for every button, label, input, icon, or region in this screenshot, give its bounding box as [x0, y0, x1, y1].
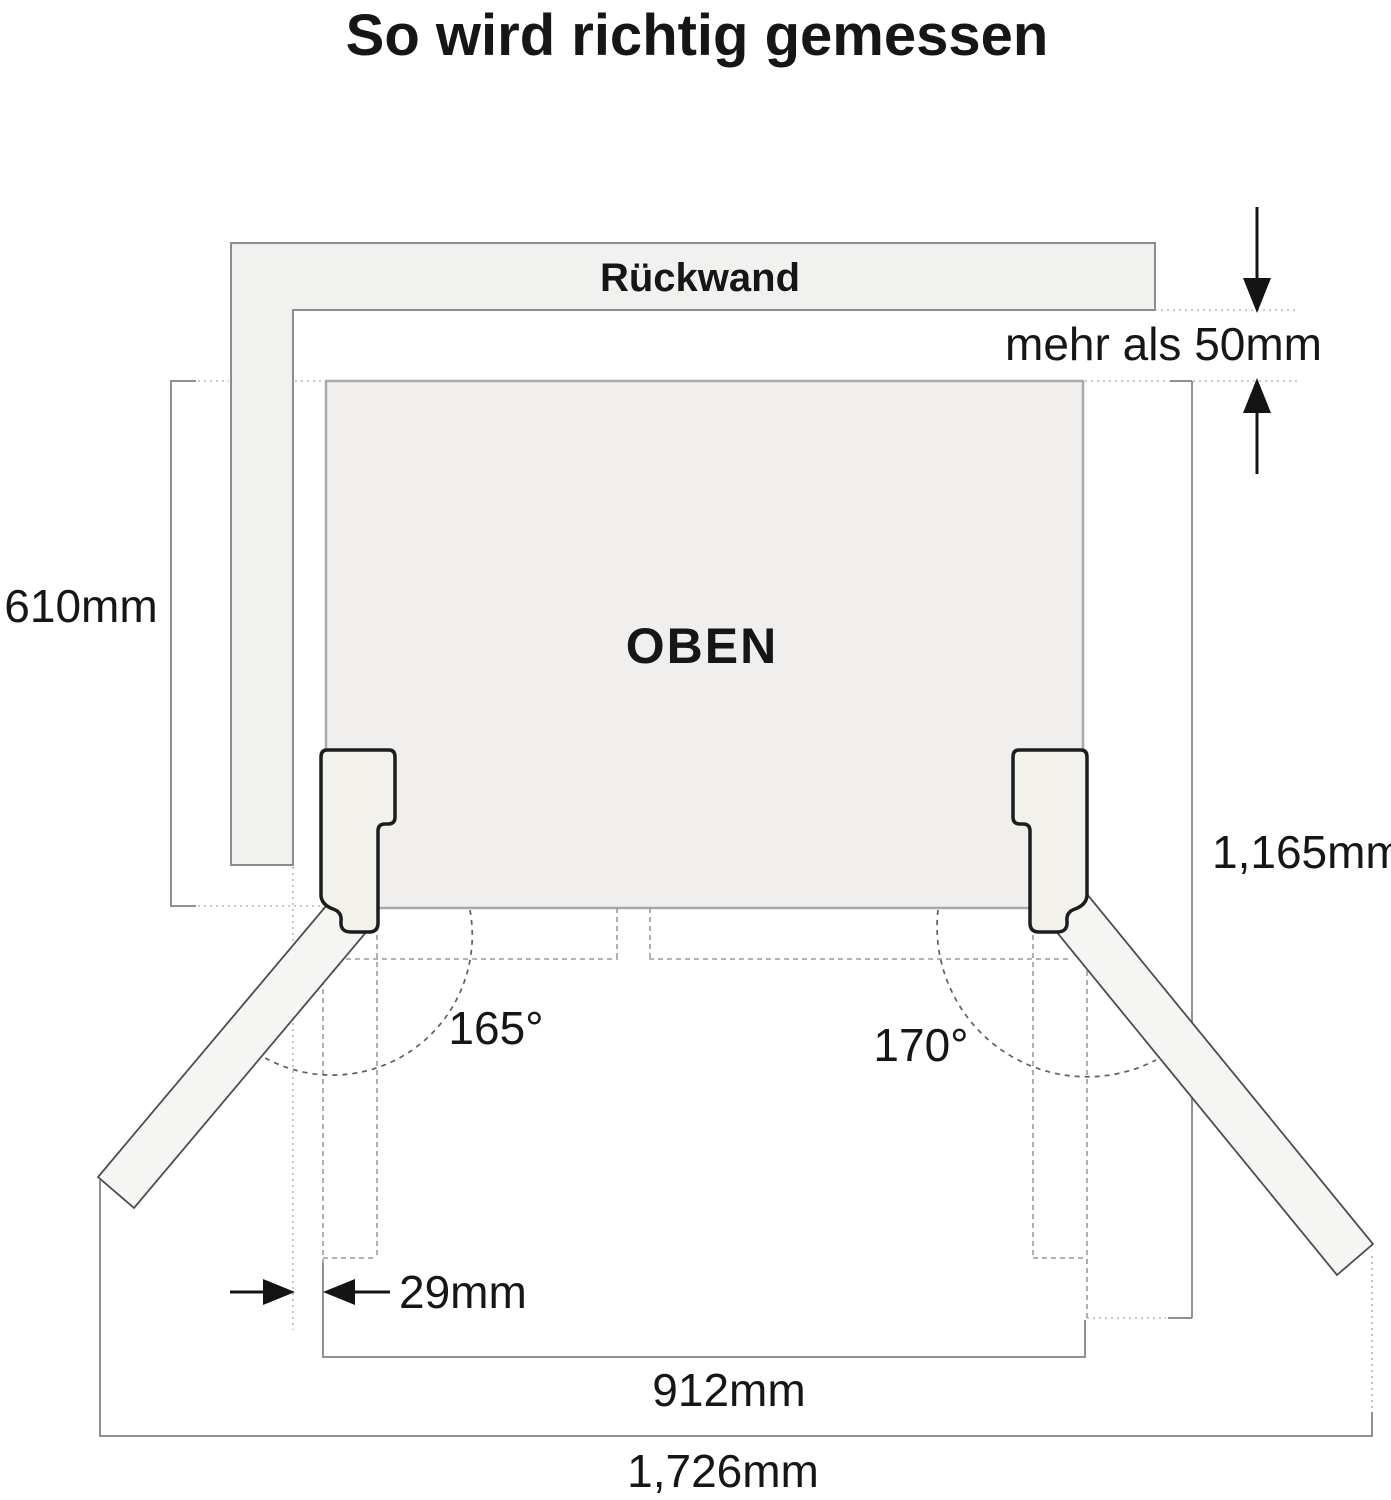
dashed-guides [323, 908, 1087, 1318]
right-door-angle-label: 170° [873, 1022, 968, 1068]
back-clearance-label: mehr als 50mm [1005, 321, 1322, 367]
back-wall-label: Rückwand [600, 258, 800, 298]
right-door-open [1046, 888, 1373, 1275]
left-door-open [98, 893, 373, 1208]
arrow-up-icon [1243, 378, 1271, 474]
depth-open-bracket [1168, 381, 1192, 1318]
cabinet-depth-label: 610mm [4, 583, 157, 629]
arrow-down-icon [1243, 207, 1271, 313]
gap-arrows [230, 1279, 390, 1305]
arrow-left-icon [323, 1279, 390, 1305]
cabinet-width-label: 912mm [652, 1367, 805, 1413]
door-swing-arcs [260, 910, 1156, 1077]
depth-bracket-610 [171, 381, 196, 906]
left-gap-label: 29mm [399, 1269, 527, 1315]
total-width-label: 1,726mm [627, 1448, 819, 1494]
diagram-canvas [0, 0, 1391, 1500]
left-door-angle-label: 165° [448, 1005, 543, 1051]
depth-doors-open-label: 1,165mm [1212, 829, 1391, 875]
arrow-right-icon [230, 1279, 295, 1305]
page-title: So wird richtig gemessen [346, 7, 1049, 65]
cabinet-top-label: OBEN [626, 621, 778, 671]
measurement-diagram: So wird richtig gemessen Rückwand mehr a… [0, 0, 1391, 1500]
